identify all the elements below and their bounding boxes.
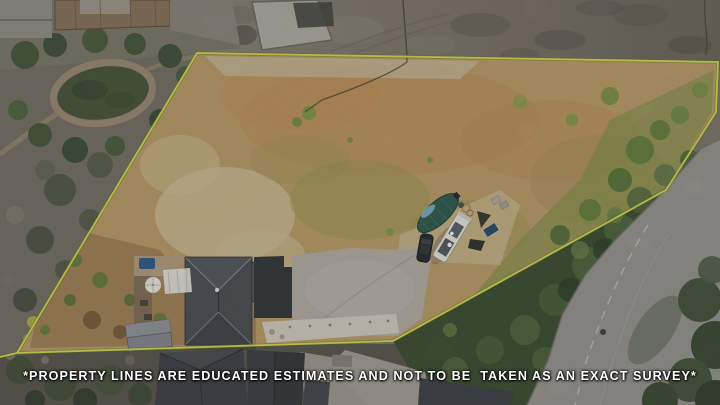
aerial-photo-canvas <box>0 0 720 405</box>
disclaimer-text: *PROPERTY LINES ARE EDUCATED ESTIMATES A… <box>0 369 720 383</box>
aerial-property-photo: *PROPERTY LINES ARE EDUCATED ESTIMATES A… <box>0 0 720 405</box>
photo-grain-light <box>0 0 720 405</box>
